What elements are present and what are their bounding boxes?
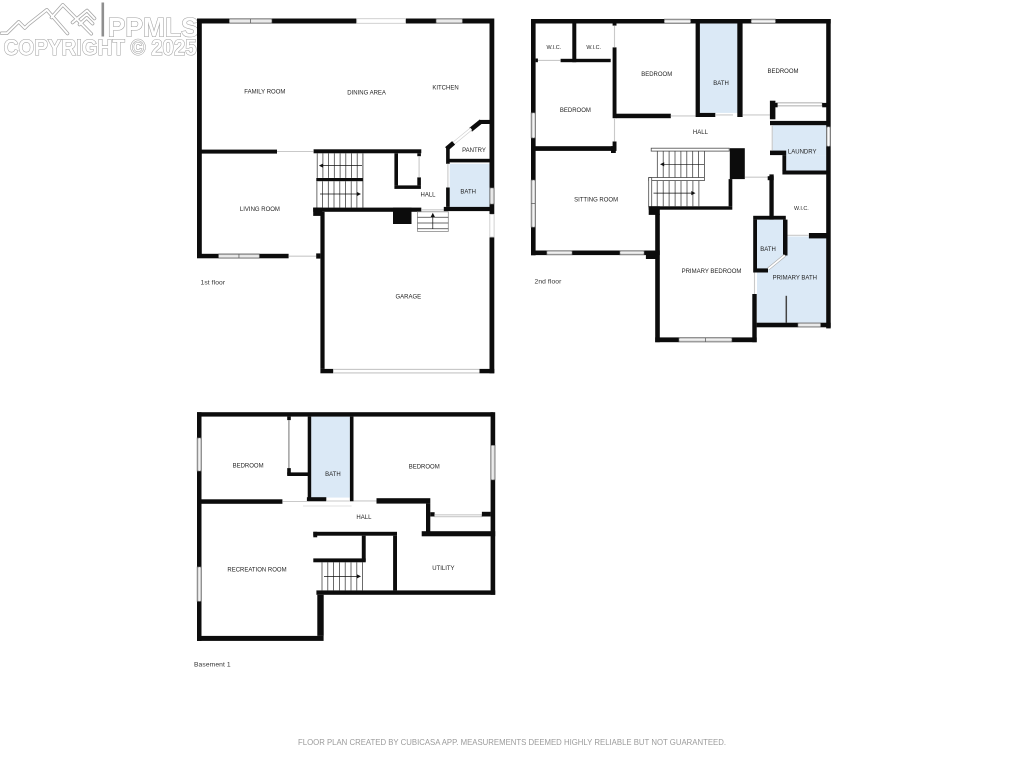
svg-text:W.I.C.: W.I.C. (586, 45, 601, 51)
svg-text:BEDROOM: BEDROOM (767, 69, 798, 75)
svg-text:W.I.C.: W.I.C. (794, 206, 809, 212)
svg-text:RECREATION ROOM: RECREATION ROOM (227, 567, 286, 573)
svg-text:KITCHEN: KITCHEN (432, 86, 458, 92)
svg-text:2nd floor: 2nd floor (535, 278, 563, 285)
svg-text:Basement 1: Basement 1 (194, 662, 231, 669)
svg-text:HALL: HALL (356, 515, 372, 521)
svg-text:BEDROOM: BEDROOM (233, 464, 264, 470)
svg-text:FLOOR PLAN CREATED BY CUBICASA: FLOOR PLAN CREATED BY CUBICASA APP. MEAS… (298, 737, 726, 747)
svg-text:DINING AREA: DINING AREA (347, 91, 386, 97)
svg-text:BEDROOM: BEDROOM (560, 108, 591, 114)
svg-text:BATH: BATH (713, 81, 729, 87)
svg-text:1st floor: 1st floor (201, 279, 226, 286)
svg-text:BEDROOM: BEDROOM (409, 465, 440, 471)
svg-text:FAMILY ROOM: FAMILY ROOM (244, 90, 285, 96)
svg-text:BATH: BATH (460, 190, 476, 196)
svg-text:LAUNDRY: LAUNDRY (788, 149, 817, 155)
svg-text:PANTRY: PANTRY (462, 148, 486, 154)
svg-text:BATH: BATH (325, 472, 341, 478)
svg-text:LIVING ROOM: LIVING ROOM (240, 207, 280, 213)
svg-text:BATH: BATH (760, 247, 776, 253)
svg-text:BEDROOM: BEDROOM (641, 72, 672, 78)
svg-text:SITTING ROOM: SITTING ROOM (574, 197, 618, 203)
svg-text:UTILITY: UTILITY (432, 566, 454, 572)
svg-text:PRIMARY BATH: PRIMARY BATH (773, 276, 817, 282)
svg-text:W.I.C.: W.I.C. (546, 45, 561, 51)
svg-text:HALL: HALL (420, 193, 436, 199)
svg-text:PRIMARY BEDROOM: PRIMARY BEDROOM (682, 269, 742, 275)
svg-text:HALL: HALL (693, 130, 709, 136)
svg-text:GARAGE: GARAGE (395, 295, 421, 301)
svg-text:COPYRIGHT © 2025: COPYRIGHT © 2025 (4, 35, 197, 60)
